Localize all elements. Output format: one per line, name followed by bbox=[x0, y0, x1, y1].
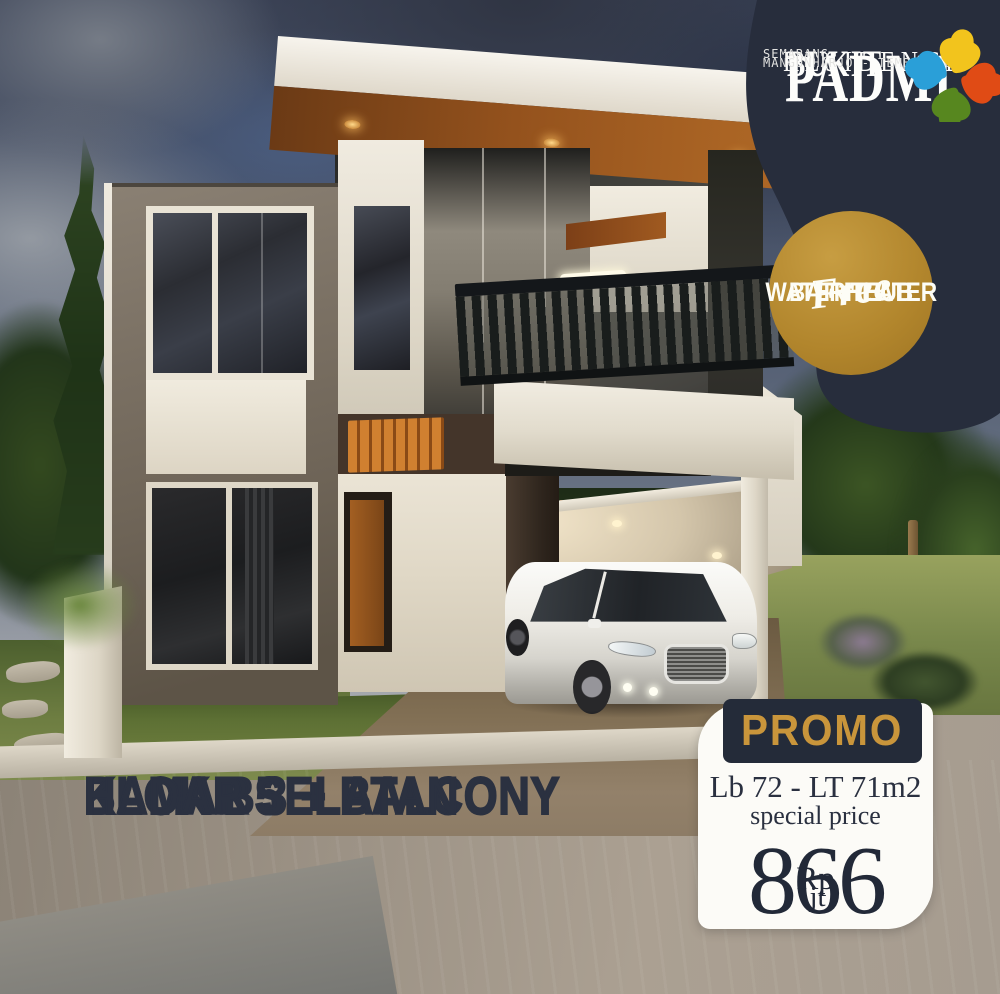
promo-size-text: Lb 72 - LT 71m2 bbox=[698, 769, 933, 805]
car-front-wheel bbox=[573, 660, 611, 714]
soffit-downlight bbox=[344, 120, 361, 130]
window-mullion bbox=[226, 488, 232, 664]
window-divider bbox=[261, 213, 263, 373]
promo-header-label: PROMO bbox=[741, 706, 903, 756]
carport-spotlight bbox=[612, 520, 622, 527]
car-mirror bbox=[588, 619, 601, 628]
upper-left-window bbox=[146, 206, 314, 380]
price-unit: jt bbox=[809, 883, 825, 912]
flower-logo-icon bbox=[900, 22, 1000, 122]
window-spandrel-panel bbox=[146, 380, 306, 474]
bay-window-glass bbox=[354, 206, 410, 370]
balcony-railing bbox=[455, 264, 795, 394]
brand-location-line2: SEMARANG bbox=[763, 47, 829, 63]
window-curtain bbox=[245, 488, 274, 664]
badge-waterheater-text: WATERHEATER bbox=[765, 277, 937, 309]
car-headlight-right bbox=[732, 633, 757, 649]
promo-price-row: Rp 866 jt bbox=[698, 824, 933, 924]
promo-header-bar: PROMO bbox=[723, 699, 922, 763]
listing-orientation: HADAP SELATAN bbox=[84, 770, 459, 824]
window-mullion bbox=[212, 213, 218, 373]
white-car bbox=[505, 562, 757, 704]
soffit-downlight bbox=[543, 137, 560, 147]
car-grille bbox=[664, 644, 730, 684]
leaf-highlight bbox=[20, 560, 140, 650]
promo-flyer: BUKIT PADMI RESIDENCE MANGUNHARJO - TEMB… bbox=[0, 0, 1000, 994]
carport-spotlight bbox=[712, 552, 722, 559]
entry-wood-door bbox=[350, 500, 384, 646]
wood-slat-accent bbox=[348, 417, 444, 472]
car-rear-wheel bbox=[506, 619, 529, 656]
free-offer-badge: Free BATHTHUB WATERHEATER bbox=[769, 211, 933, 375]
car-fog-light bbox=[649, 687, 658, 696]
